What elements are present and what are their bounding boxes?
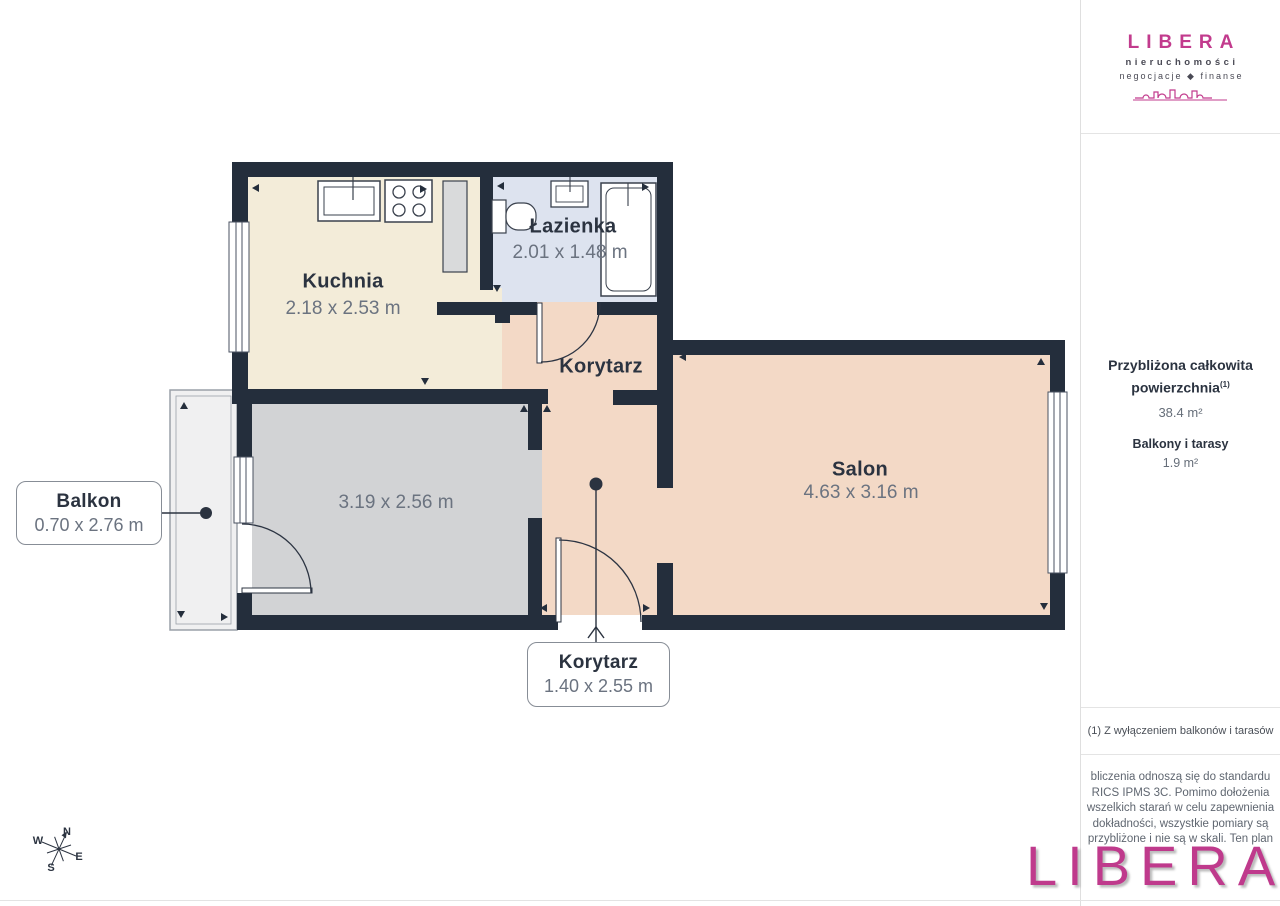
room-label-korytarz: Korytarz bbox=[559, 356, 643, 379]
room-label-salon: Salon bbox=[832, 459, 888, 482]
room-dims-lazienka: 2.01 x 1.48 m bbox=[512, 242, 627, 264]
balconies-label: Balkony i tarasy bbox=[1081, 437, 1280, 451]
summary-title-line2: powierzchnia bbox=[1131, 380, 1220, 396]
disclaimer-line: RICS IPMS 3C. Pomimo dołożenia bbox=[1081, 786, 1280, 802]
summary-title-line1: Przybliżona całkowita bbox=[1108, 357, 1253, 373]
callout-korytarz: Korytarz 1.40 x 2.55 m bbox=[527, 642, 670, 707]
salon-window bbox=[1048, 392, 1067, 573]
kitchen-window bbox=[229, 222, 249, 352]
room-dims-salon: 4.63 x 3.16 m bbox=[803, 482, 918, 504]
bathtub bbox=[601, 183, 656, 296]
brand-tagline-1: nieruchomości bbox=[1122, 57, 1238, 68]
floorplan-page: Kuchnia 2.18 x 2.53 m Łazienka 2.01 x 1.… bbox=[0, 0, 1280, 906]
balcony-door-window bbox=[234, 457, 253, 523]
brand-logo-box: LIBERA nieruchomości negocjacje ◆ finans… bbox=[1081, 0, 1280, 134]
watermark-logo: LIBERA bbox=[1026, 838, 1280, 894]
room-dims-kuchnia: 2.18 x 2.53 m bbox=[285, 298, 400, 320]
area-summary: Przybliżona całkowita powierzchnia(1) 38… bbox=[1081, 356, 1280, 470]
brand-skyline-icon bbox=[1133, 85, 1229, 101]
compass-label-s: S bbox=[47, 862, 54, 874]
stove bbox=[385, 180, 432, 222]
balconies-value: 1.9 m² bbox=[1081, 456, 1280, 470]
room-label-lazienka: Łazienka bbox=[530, 216, 617, 239]
floor-salon-opening bbox=[657, 488, 673, 563]
disclaimer-line: wszelkich starań w celu zapewnienia bbox=[1081, 801, 1280, 817]
callout-balkon-name: Balkon bbox=[56, 490, 121, 514]
bathroom-sink bbox=[551, 177, 588, 207]
room-label-kuchnia: Kuchnia bbox=[303, 271, 384, 294]
compass-label-e: E bbox=[75, 851, 82, 863]
kitchen-sink bbox=[318, 177, 380, 221]
page-bottom-edge bbox=[0, 900, 1280, 901]
callout-korytarz-name: Korytarz bbox=[559, 651, 638, 675]
compass-label-w: W bbox=[33, 835, 43, 847]
brand-tagline-2: negocjacje ◆ finanse bbox=[1118, 71, 1244, 82]
summary-footnote-ref: (1) bbox=[1220, 380, 1230, 389]
disclaimer-line: bliczenia odnoszą się do standardu bbox=[1081, 770, 1280, 786]
compass-label-n: N bbox=[63, 826, 71, 838]
fridge bbox=[443, 181, 467, 272]
brand-logo-text: LIBERA bbox=[1121, 32, 1241, 54]
callout-korytarz-dims: 1.40 x 2.55 m bbox=[544, 675, 653, 698]
info-sidebar: LIBERA nieruchomości negocjacje ◆ finans… bbox=[1080, 0, 1280, 906]
disclaimer-line: dokładności, wszystkie pomiary są bbox=[1081, 817, 1280, 833]
total-area-value: 38.4 m² bbox=[1081, 405, 1280, 420]
callout-balkon: Balkon 0.70 x 2.76 m bbox=[16, 481, 162, 545]
summary-title: Przybliżona całkowita powierzchnia(1) bbox=[1081, 356, 1280, 398]
callout-balkon-dims: 0.70 x 2.76 m bbox=[34, 514, 143, 537]
room-dims-pokoj: 3.19 x 2.56 m bbox=[338, 492, 453, 514]
footnote: (1) Z wyłączeniem balkonów i tarasów bbox=[1081, 707, 1280, 755]
